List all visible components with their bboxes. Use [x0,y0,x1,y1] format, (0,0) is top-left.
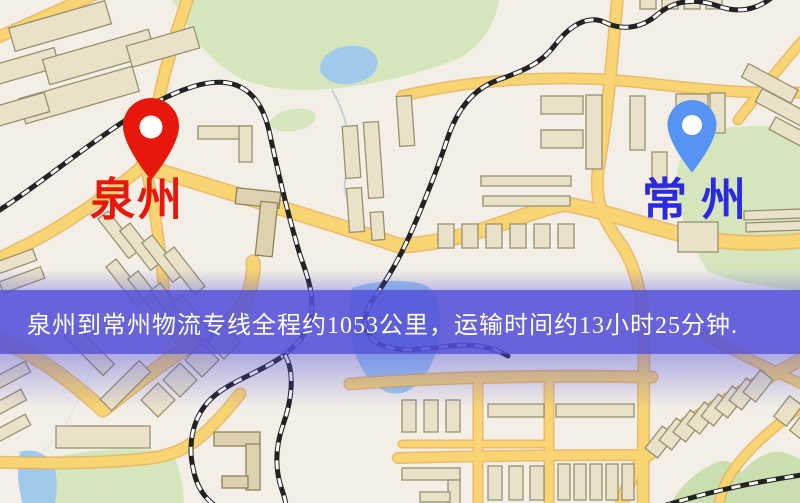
origin-city-label: 泉州 [90,178,184,223]
banner-bottom-fade [0,354,800,409]
map-illustration [0,0,800,503]
logistics-route-map: 泉州 常州 泉州到常州物流专线全程约1053公里，运输时间约13小时25分钟. [0,0,800,503]
destination-city-label: 常州 [642,178,760,223]
route-info-text: 泉州到常州物流专线全程约1053公里，运输时间约13小时25分钟. [27,305,738,340]
route-info-banner: 泉州到常州物流专线全程约1053公里，运输时间约13小时25分钟. [0,290,800,354]
banner-top-fade [0,269,800,290]
